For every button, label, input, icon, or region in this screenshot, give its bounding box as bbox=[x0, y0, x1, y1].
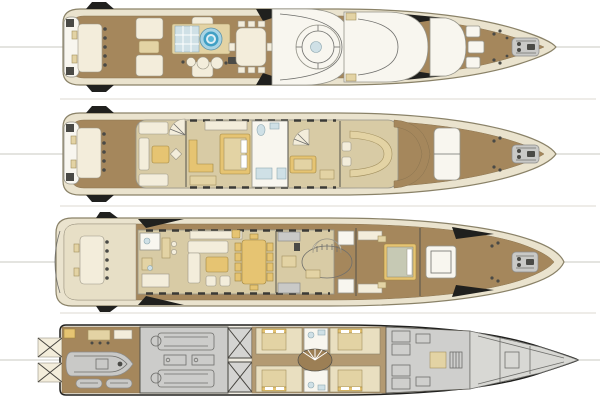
tender-garage bbox=[62, 327, 140, 393]
guest-cabins bbox=[252, 327, 386, 393]
anchor-windlass-icon bbox=[512, 252, 538, 272]
bridge-deck-plan bbox=[63, 106, 556, 202]
guest-bed bbox=[338, 370, 362, 391]
vip-bathroom bbox=[252, 121, 288, 187]
deck-plans-canvas bbox=[0, 0, 600, 400]
yacht-deck-plans-image bbox=[0, 0, 600, 400]
lower-deck-plan bbox=[38, 325, 578, 395]
bow-storage bbox=[470, 331, 578, 389]
crew-quarters bbox=[386, 327, 470, 393]
sun-deck-plan bbox=[63, 2, 556, 92]
jet-ski-icon bbox=[76, 379, 102, 388]
jet-ski-icon bbox=[106, 379, 132, 388]
guest-bed bbox=[262, 329, 286, 350]
guest-bed bbox=[262, 370, 286, 391]
satellite-dome-icon bbox=[311, 42, 322, 53]
guest-bed bbox=[338, 329, 362, 350]
spa-pool-platform bbox=[172, 24, 230, 54]
radar-arch-domes bbox=[272, 9, 466, 85]
lobby-staircase-icon bbox=[298, 349, 332, 371]
main-deck-plan bbox=[55, 212, 564, 312]
engine-room bbox=[140, 327, 228, 393]
centerlines bbox=[0, 47, 600, 360]
